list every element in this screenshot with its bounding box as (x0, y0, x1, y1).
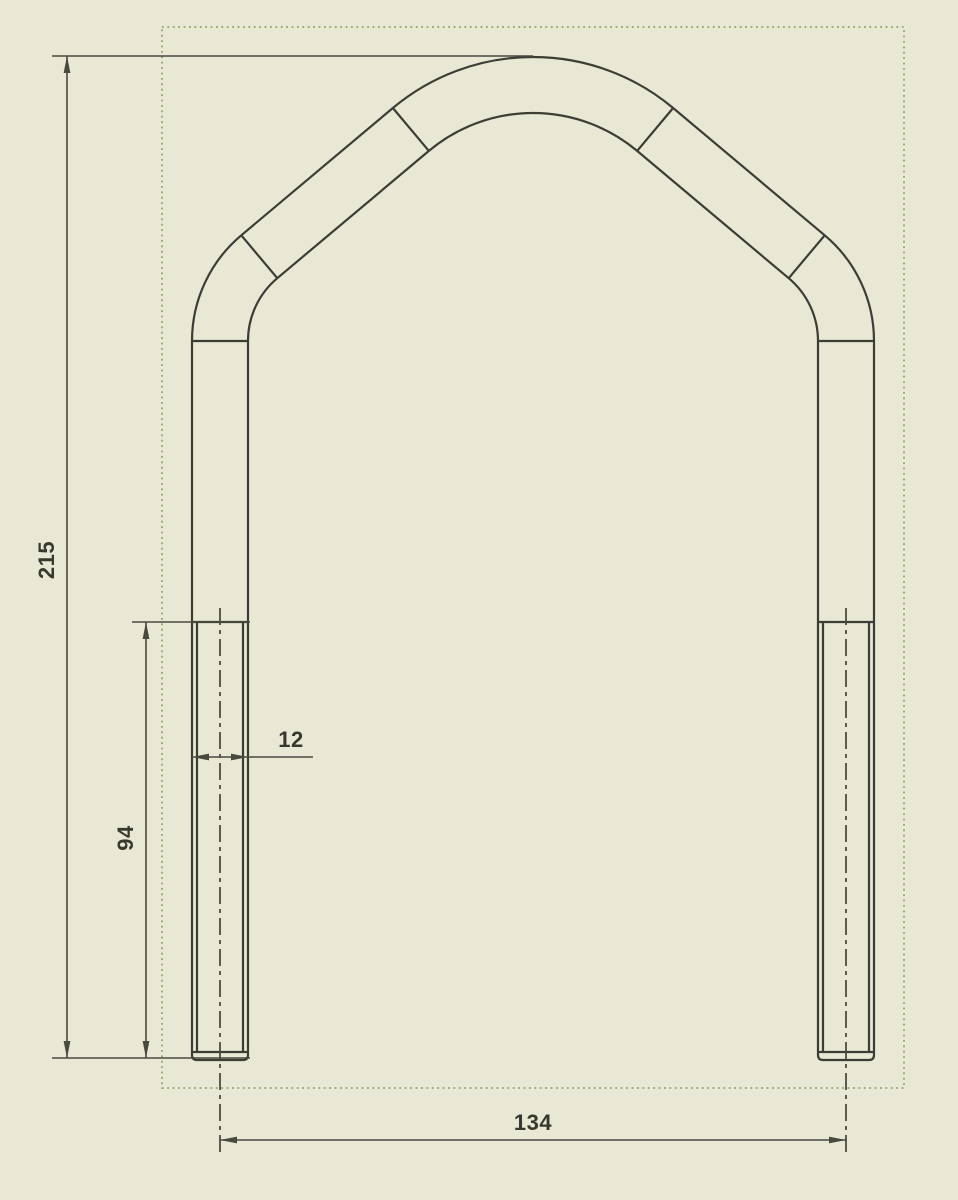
leg-spacing-dimension-label[interactable]: 134 (514, 1110, 552, 1136)
arrowhead-down (143, 1041, 150, 1058)
peak-tangent-line-left (393, 108, 429, 151)
thread-length-dimension-label[interactable]: 94 (113, 825, 139, 850)
rod-diameter-dimension-label[interactable]: 12 (278, 727, 303, 753)
bend-tangent-line-left (241, 235, 277, 278)
arrowhead-right (231, 754, 248, 761)
part-outer-profile (192, 57, 874, 1052)
cad-viewport[interactable]: 215 94 12 134 (0, 0, 958, 1200)
peak-tangent-line-right (637, 108, 673, 151)
part-geometry (192, 57, 874, 1060)
centerlines (220, 608, 846, 1157)
bend-tangent-line-right (789, 235, 825, 278)
dimension-lines (52, 56, 846, 1143)
arrowhead-up (64, 56, 71, 73)
arrowhead-left (220, 1137, 237, 1144)
arrowhead-right (829, 1137, 846, 1144)
arrowhead-left (192, 754, 209, 761)
sheet-boundary (162, 27, 904, 1088)
arrowhead-down (64, 1041, 71, 1058)
overall-height-dimension-label[interactable]: 215 (34, 541, 60, 579)
arrowhead-up (143, 622, 150, 639)
part-inner-profile (248, 113, 818, 1052)
technical-drawing (0, 0, 958, 1200)
